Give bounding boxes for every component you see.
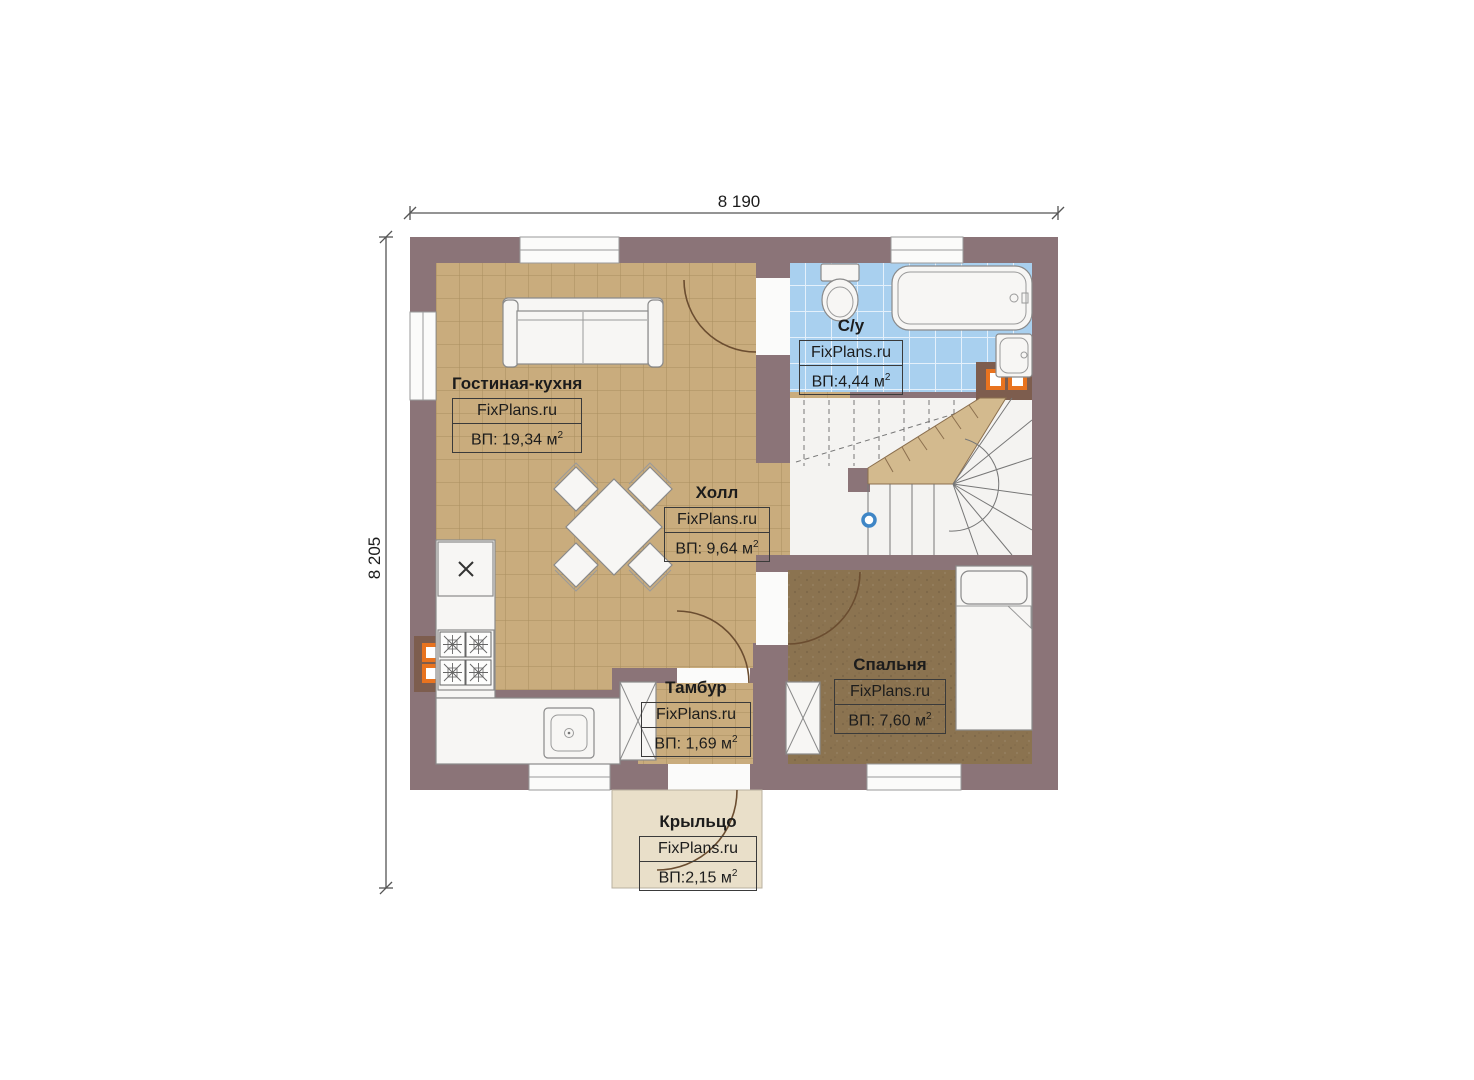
level-marker bbox=[863, 514, 875, 526]
room-info-box: FixPlans.ru ВП: 19,34 м2 bbox=[452, 398, 582, 453]
stove bbox=[438, 630, 494, 690]
room-name: С/у bbox=[799, 316, 903, 336]
room-label-bedroom: Спальня FixPlans.ru ВП: 7,60 м2 bbox=[834, 655, 946, 734]
x-block-right bbox=[786, 682, 820, 754]
pillow bbox=[961, 571, 1027, 604]
room-label-vestibule: Тамбур FixPlans.ru ВП: 1,69 м2 bbox=[641, 678, 751, 757]
window-top-right bbox=[891, 237, 963, 263]
room-info-box: FixPlans.ru ВП: 1,69 м2 bbox=[641, 702, 751, 757]
room-label-bathroom: С/у FixPlans.ru ВП:4,44 м2 bbox=[799, 316, 903, 395]
brand-watermark: FixPlans.ru bbox=[640, 837, 756, 862]
room-area: ВП: 9,64 м2 bbox=[665, 533, 769, 561]
floor-plan-page: 8 190 8 205 Гостиная-кухня FixPlans.ru В… bbox=[0, 0, 1474, 1080]
room-label-porch: Крыльцо FixPlans.ru ВП:2,15 м2 bbox=[639, 812, 757, 891]
window-left bbox=[410, 312, 436, 400]
room-area: ВП:4,44 м2 bbox=[800, 366, 902, 394]
room-name: Крыльцо bbox=[639, 812, 757, 832]
sofa bbox=[503, 298, 663, 367]
dimension-width-label: 8 190 bbox=[704, 192, 774, 212]
room-name: Тамбур bbox=[641, 678, 751, 698]
window-top-left bbox=[520, 237, 619, 263]
bathtub bbox=[892, 266, 1032, 330]
window-bottom-bedroom bbox=[867, 764, 961, 790]
room-info-box: FixPlans.ru ВП: 9,64 м2 bbox=[664, 507, 770, 562]
room-area: ВП: 7,60 м2 bbox=[835, 705, 945, 733]
brand-watermark: FixPlans.ru bbox=[453, 399, 581, 424]
room-name: Спальня bbox=[834, 655, 946, 675]
window-bottom-kitchen bbox=[529, 764, 610, 790]
room-info-box: FixPlans.ru ВП: 7,60 м2 bbox=[834, 679, 946, 734]
room-label-hall: Холл FixPlans.ru ВП: 9,64 м2 bbox=[664, 483, 770, 562]
room-area: ВП: 19,34 м2 bbox=[453, 424, 581, 452]
room-name: Холл bbox=[664, 483, 770, 503]
brand-watermark: FixPlans.ru bbox=[642, 703, 750, 728]
room-info-box: FixPlans.ru ВП:4,44 м2 bbox=[799, 340, 903, 395]
dimension-height-label: 8 205 bbox=[365, 523, 385, 593]
room-label-living: Гостиная-кухня FixPlans.ru ВП: 19,34 м2 bbox=[452, 374, 582, 453]
brand-watermark: FixPlans.ru bbox=[835, 680, 945, 705]
toilet bbox=[821, 264, 859, 321]
fridge bbox=[438, 542, 493, 596]
brand-watermark: FixPlans.ru bbox=[800, 341, 902, 366]
bed bbox=[956, 566, 1032, 730]
dining-set bbox=[554, 463, 672, 591]
room-info-box: FixPlans.ru ВП:2,15 м2 bbox=[639, 836, 757, 891]
room-area: ВП: 1,69 м2 bbox=[642, 728, 750, 756]
room-area: ВП:2,15 м2 bbox=[640, 862, 756, 890]
bathroom-sink bbox=[996, 334, 1032, 377]
room-name: Гостиная-кухня bbox=[452, 374, 582, 394]
kitchen-sink bbox=[544, 708, 594, 758]
brand-watermark: FixPlans.ru bbox=[665, 508, 769, 533]
